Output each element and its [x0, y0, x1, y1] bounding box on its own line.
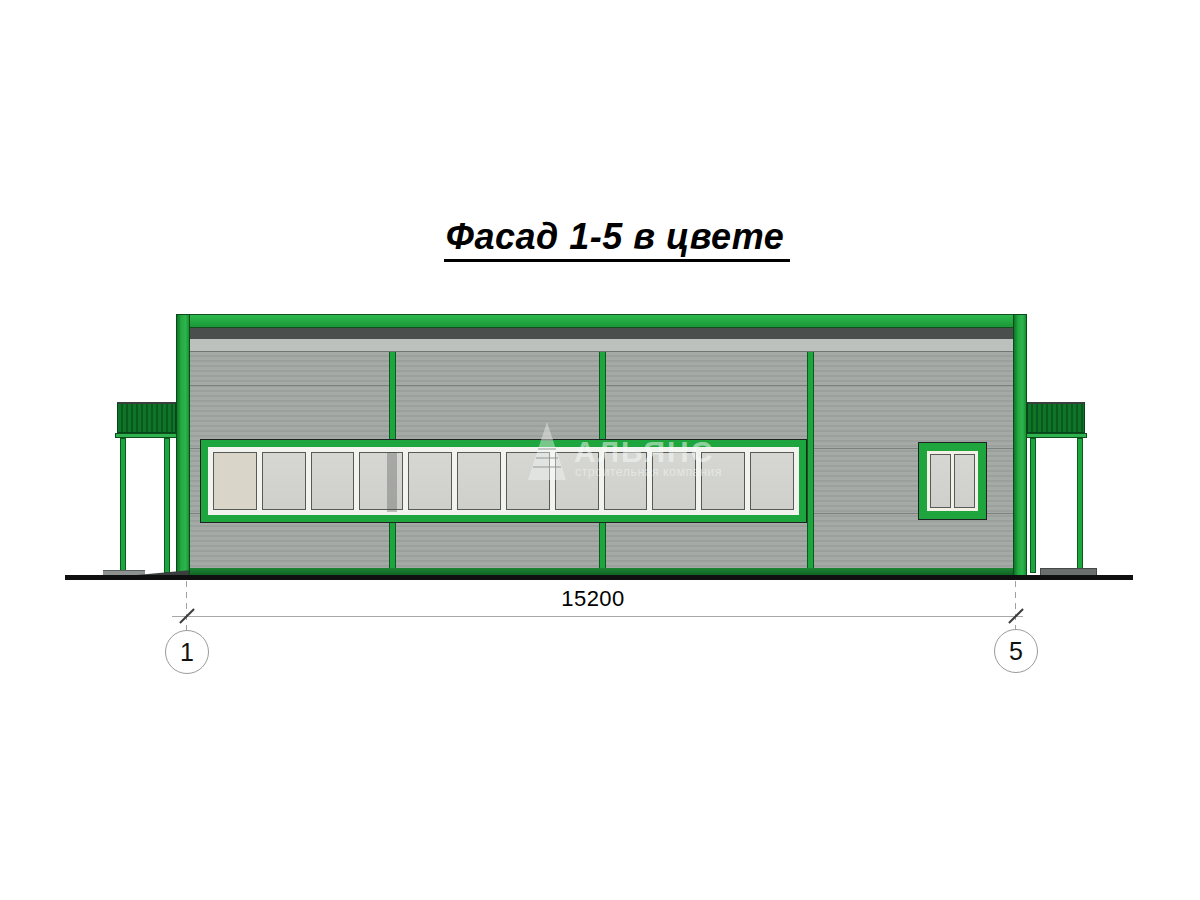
ribbon-window-panes — [213, 452, 794, 510]
window-pane — [506, 452, 550, 510]
window-pane — [750, 452, 794, 510]
window-pane — [604, 452, 648, 510]
window-pane — [262, 452, 306, 510]
canopy-right-post — [1030, 438, 1036, 573]
ground-line — [65, 575, 1133, 580]
canopy-left-post — [164, 438, 170, 573]
window-frame — [208, 447, 799, 515]
small-window-panes — [930, 454, 975, 508]
window-pane — [930, 454, 951, 508]
column-shadow-behind-glass — [387, 452, 397, 512]
facade-drawing-sheet: Фасад 1-5 в цвете — [0, 0, 1200, 900]
canopy-right — [1027, 402, 1085, 433]
window-pane — [701, 452, 745, 510]
window-pane — [408, 452, 452, 510]
window-frame — [927, 451, 978, 511]
canopy-left — [117, 402, 176, 433]
dimension-label-wrap: 15200 — [443, 586, 743, 612]
roof-edge-band — [176, 314, 1027, 328]
window-pane — [457, 452, 501, 510]
axis-bubble-5: 5 — [994, 629, 1038, 673]
ribbon-window — [200, 439, 807, 523]
corner-column-left — [176, 314, 190, 577]
window-pane — [652, 452, 696, 510]
window-pane — [555, 452, 599, 510]
window-pane — [213, 452, 257, 510]
axis-number: 5 — [1009, 637, 1023, 666]
axis-line-5 — [1015, 581, 1016, 629]
window-pane — [954, 454, 975, 508]
drawing-title: Фасад 1-5 в цвете — [444, 216, 790, 262]
parapet-dark-band — [190, 328, 1014, 339]
dimension-line — [172, 616, 1023, 617]
canopy-right-post — [1077, 438, 1083, 573]
axis-bubble-1: 1 — [165, 630, 209, 674]
window-pane — [311, 452, 355, 510]
facade-mullion — [807, 352, 814, 569]
corner-column-right — [1013, 314, 1027, 577]
small-window — [918, 442, 987, 520]
dimension-value: 15200 — [561, 586, 625, 611]
axis-number: 1 — [180, 638, 194, 667]
canopy-left-post — [120, 438, 126, 573]
parapet-light-band — [190, 339, 1014, 352]
axis-line-1 — [186, 581, 187, 631]
page-title: Фасад 1-5 в цвете — [0, 216, 1200, 262]
